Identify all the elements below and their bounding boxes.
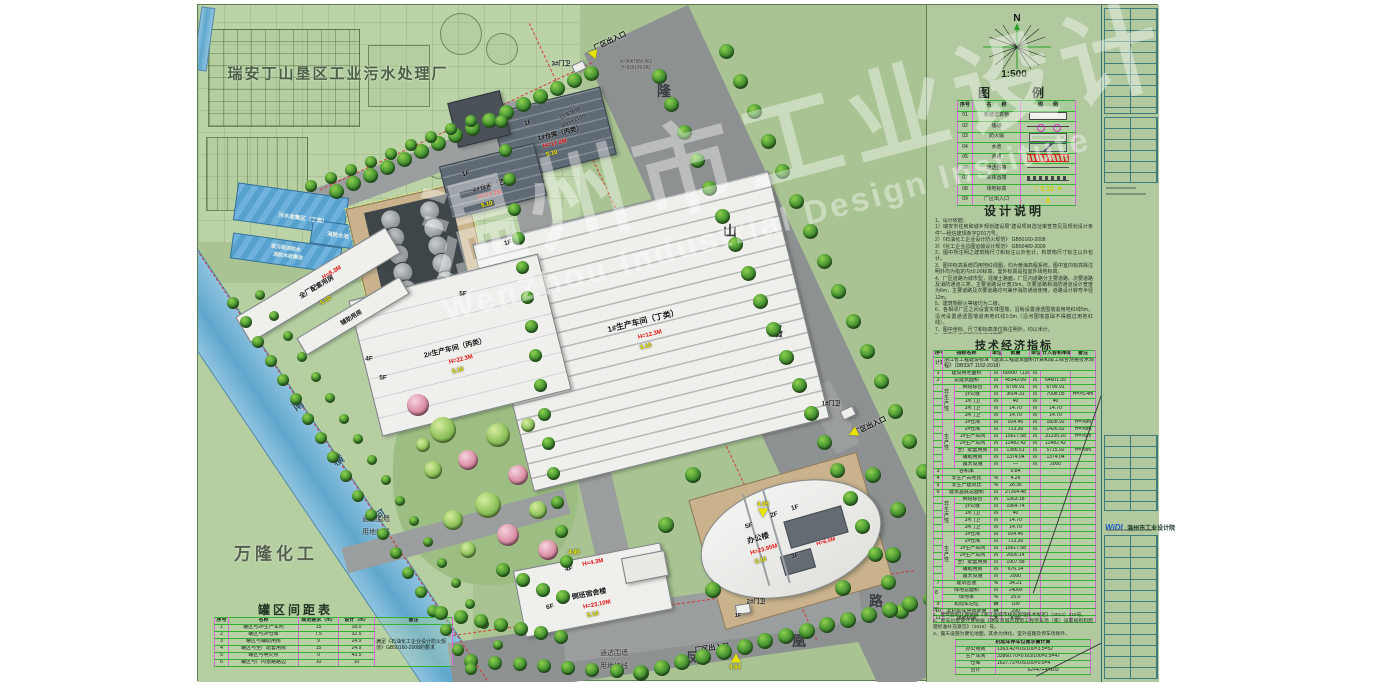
tree-icon (325, 172, 337, 184)
table-cell: ㎡ (991, 370, 1002, 377)
tree-icon (346, 176, 361, 191)
table-cell: H=>8m (1071, 426, 1096, 433)
table-cell (1030, 531, 1041, 538)
tree-icon (290, 393, 302, 405)
workshop2-floor-5f2: 5F (379, 375, 387, 382)
table-cell: 14.70 (1002, 517, 1030, 524)
tree-icon (516, 97, 531, 112)
table-row: 辅助用房㎡676.14 (934, 566, 1096, 573)
tree-icon (534, 379, 547, 392)
tree-icon (437, 558, 447, 568)
table-cell: 31235.16 (1041, 433, 1071, 440)
tree-icon (789, 194, 804, 209)
tree-icon (533, 89, 548, 104)
table-cell: 1374.04 (1041, 454, 1071, 461)
table-cell: ㎡ (1030, 433, 1041, 440)
tree-icon (550, 81, 565, 96)
table-cell: ㎡ (991, 524, 1002, 531)
table-cell: ㎡ (991, 496, 1002, 503)
tree-icon (705, 582, 721, 598)
table-cell: 01 (958, 111, 973, 122)
table-cell: ㎡ (991, 384, 1002, 391)
tree-icon (690, 153, 705, 168)
tree-icon (255, 290, 265, 300)
tree-icon (521, 418, 535, 432)
table-cell: 辅助用房 (955, 454, 991, 461)
note-line: 3、露天设施为硬化地面，其余为绿化，室外道路及停车场除外。 (933, 632, 1093, 638)
table-row: 序号名称规范要求（m）设计（m）备注 (215, 618, 453, 625)
tree-icon (423, 537, 433, 547)
tech-indicators-table: 序号指标名称单位数量单位计入容积率建筑面积备注计算建筑面积依据浙江省工程建设标准… (933, 350, 1096, 623)
tank-spacing-title: 罐区间距表 (258, 601, 333, 618)
tree-icon (302, 413, 314, 425)
table-cell: 32.5 (339, 632, 375, 639)
tree-icon (512, 232, 525, 245)
table-cell (1071, 566, 1096, 573)
table-cell: ㎡ (1030, 454, 1041, 461)
table-cell (1071, 496, 1096, 503)
table-cell: 总建筑面积 (943, 377, 991, 384)
table-cell: 罐区与全厂配套用房 (229, 646, 299, 653)
tree-icon (547, 467, 560, 480)
tree-icon (460, 542, 476, 558)
table-cell: 仓库 (956, 661, 996, 668)
tree-icon (674, 654, 690, 670)
tree-icon (495, 115, 508, 128)
table-cell (1041, 594, 1071, 601)
tree-icon (424, 461, 442, 479)
table-cell: ㎡ (991, 391, 1002, 398)
table-cell: % (991, 475, 1002, 482)
table-cell: ㎡ (1030, 370, 1041, 377)
tree-icon (779, 350, 794, 365)
table-cell (1071, 454, 1096, 461)
table-cell: 3#门卫 (955, 412, 991, 419)
tree-icon (508, 203, 521, 216)
table-cell: 07 (958, 174, 973, 185)
gate2-label: 2#门卫 (747, 597, 766, 606)
table-cell (934, 573, 943, 580)
legend-row: 01新建建筑物 (958, 111, 1076, 122)
table-cell: 2#生产车间 (955, 440, 991, 447)
table-cell (934, 440, 943, 447)
table-cell: 序号 (215, 618, 229, 625)
tree-icon (664, 97, 679, 112)
table-cell: 3604.31 (1002, 391, 1030, 398)
table-cell: 6 (215, 660, 229, 667)
tree-icon (567, 73, 582, 88)
tech-notes-text: 注：1、建筑面积计算依据《浙江省城市规划管理技术规定》（2012）316号。2、… (933, 607, 1093, 637)
table-cell: 建筑基底总面积 (943, 489, 991, 496)
table-cell: ㎡ (991, 426, 1002, 433)
coord-y-label: Y=520139.562 (621, 65, 650, 70)
table-row: 1#生产车间㎡15617.58㎡31235.16H=>8m (934, 433, 1096, 440)
table-cell: 1386.51 (1002, 447, 1030, 454)
neighbor-label: 万隆化工 (234, 540, 318, 565)
table-row: 全厂配套用房㎡1907.58 (934, 559, 1096, 566)
table-cell: 指标名称 (943, 351, 991, 358)
table-cell: 实体围墙 (973, 174, 1021, 185)
tree-icon (882, 602, 898, 618)
table-cell: 14.70 (1002, 524, 1030, 531)
tree-icon (475, 492, 501, 518)
table-row: 全厂配套用房㎡1386.51㎡5715.92H=>8m (934, 447, 1096, 454)
table-cell: 24.9 (339, 646, 375, 653)
table-cell: 60000（120亩） (1002, 370, 1030, 377)
table-cell: 27264.48 (1002, 489, 1030, 496)
table-cell (934, 538, 943, 545)
table-cell: 713.26 (1002, 426, 1030, 433)
table-row: 1#门卫㎡40㎡40 (934, 398, 1096, 405)
table-cell: 道路 (973, 153, 1021, 164)
tree-icon (843, 491, 858, 506)
table-cell: 06 (958, 164, 973, 175)
legend-row: 04水池 (958, 143, 1076, 154)
table-cell (1021, 132, 1076, 143)
tree-icon (766, 322, 781, 337)
north-letter: N (1013, 13, 1020, 24)
table-cell (1041, 503, 1071, 510)
table-cell: 1627.72×0.6/100×0.5=4 (996, 661, 1091, 668)
table-cell (1041, 573, 1071, 580)
logo-mark: WiDI (1105, 523, 1123, 532)
tree-icon (269, 311, 279, 321)
table-cell: ㎡ (991, 517, 1002, 524)
tree-icon (329, 184, 344, 199)
table-cell: ㎡ (1030, 440, 1041, 447)
table-cell: 非生产占地比 (943, 475, 991, 482)
tree-icon (363, 168, 378, 183)
table-cell: ㎡ (1030, 405, 1041, 412)
table-cell: 罐区与明火点 (229, 653, 299, 660)
table-cell: 设计（m） (339, 618, 375, 625)
table-row: 2#仓库㎡713.26㎡1426.52H=>8m (934, 426, 1096, 433)
tree-icon (227, 297, 239, 309)
table-cell: H=>8m (1071, 433, 1096, 440)
table-cell: 水池 (973, 143, 1021, 154)
table-cell: 5 (215, 653, 229, 660)
table-cell (934, 531, 943, 538)
table-cell: 名称 (229, 618, 299, 625)
tree-icon (493, 640, 503, 650)
titleblock-text-smudge (1106, 187, 1136, 189)
tree-icon (654, 660, 670, 676)
table-cell: 罐区与2#生产车间 (229, 625, 299, 632)
table-cell: 1#仓库 (955, 419, 991, 426)
table-cell: ㎡ (991, 412, 1002, 419)
table-cell: % (991, 580, 1002, 587)
note-line: 3、图中标高系统同用地红线图，均为黄海高程系统，图中室内标高除注明外均为指定内±… (935, 263, 1093, 276)
tree-icon (497, 524, 519, 546)
table-cell (1041, 482, 1071, 489)
tree-icon (397, 152, 412, 167)
table-cell: 机动车停车位需求量计算 (956, 640, 1091, 647)
table-cell: 露天设施 (955, 573, 991, 580)
titleblock-text-smudge (1106, 529, 1152, 531)
fence-open-label-b: 通透围墙 (600, 648, 628, 658)
table-cell: 非生产性 (943, 496, 955, 531)
table-cell (1071, 510, 1096, 517)
table-cell: 25.0 (1002, 594, 1030, 601)
table-cell: 28.35 (1002, 482, 1030, 489)
tree-icon (685, 467, 701, 483)
table-cell: 15617.58 (1002, 545, 1030, 552)
tree-icon (799, 623, 815, 639)
table-cell: ㎡ (991, 454, 1002, 461)
tree-icon (677, 125, 692, 140)
table-row: 2#门卫㎡14.70 (934, 517, 1096, 524)
tree-icon (658, 517, 674, 533)
table-cell (1030, 538, 1041, 545)
table-cell (934, 391, 943, 398)
table-row: 1罐区与2#生产车间1518.0满足《石油化工企业设计防火规范》GB50160-… (215, 625, 453, 632)
table-cell (1071, 545, 1096, 552)
table-cell: 1#门卫 (955, 510, 991, 517)
table-cell: 64601.55 (1041, 377, 1071, 384)
table-cell: 43.5 (339, 653, 375, 660)
table-cell: 2#仓库 (955, 426, 991, 433)
tree-icon (874, 374, 889, 389)
note-line: 4、厂区道路为城市型，混凝土路面，厂区内道路分主要道路、次要道路及消防通道三类，… (935, 276, 1093, 302)
table-cell (934, 545, 943, 552)
table-cell: ㎡ (991, 566, 1002, 573)
table-cell (1030, 510, 1041, 517)
table-cell: 1#生产车间 (955, 433, 991, 440)
tank-legend-icon (1027, 123, 1069, 131)
note-line: 1）瑞安市住房和城乡规划建设局“建设项目选址审查意见及规划设计条件”—经信建规条… (935, 224, 1093, 237)
table-cell: 03 (958, 132, 973, 143)
table-cell (1030, 517, 1041, 524)
road-legend-icon (1027, 154, 1069, 162)
table-cell (1071, 531, 1096, 538)
table-cell: 防火堤 (973, 132, 1021, 143)
table-cell: 08 (958, 185, 973, 196)
table-cell: 40 (1002, 510, 1030, 517)
table-cell (1030, 482, 1041, 489)
table-cell: — (1002, 461, 1030, 468)
table-cell (1071, 370, 1096, 377)
design-notes-heading: 设计说明 (927, 202, 1101, 219)
table-cell: 2 (934, 377, 943, 384)
table-cell: 通透围墙 (973, 164, 1021, 175)
title-block-strip: WiDI 温州市工业设计院 (1101, 5, 1159, 682)
table-cell (1041, 468, 1071, 475)
table-cell (1021, 164, 1076, 175)
table-cell: ㎡ (1030, 384, 1041, 391)
table-row: 8绿地总面积㎡14000 (934, 587, 1096, 594)
table-cell: 罐区与2#仓库 (229, 632, 299, 639)
table-cell (1041, 566, 1071, 573)
table-cell: 单位 (1030, 351, 1041, 358)
table-cell: 40 (1002, 398, 1030, 405)
tree-icon (902, 434, 917, 449)
table-row: 办公楼㎡1964.74 (934, 503, 1096, 510)
tree-icon (835, 580, 851, 596)
table-cell (1030, 489, 1041, 496)
table-cell: 1363.18 (1002, 496, 1030, 503)
legend-row: 05道路 (958, 153, 1076, 164)
table-cell (1030, 594, 1041, 601)
tree-icon (365, 156, 377, 168)
table-cell: 7.5 (299, 632, 339, 639)
legend-row: 03防火堤 (958, 132, 1076, 143)
tree-icon (407, 394, 429, 416)
titleblock-approval-table (1104, 117, 1158, 183)
table-row: 露天设施㎡—㎡2000 (934, 461, 1096, 468)
table-cell: 计入容积率建筑面积 (1041, 351, 1071, 358)
table-cell (934, 447, 943, 454)
coord-x-label: X=3067560.562 (620, 59, 652, 64)
table-cell (934, 419, 943, 426)
table-cell (1071, 475, 1096, 482)
table-cell: ㎡ (991, 503, 1002, 510)
tree-icon (747, 104, 762, 119)
tree-icon (513, 657, 527, 671)
table-cell: 9 (299, 653, 339, 660)
legend-row: 02储罐 (958, 122, 1076, 133)
table-row: 6建筑基底总面积㎡27264.48 (934, 489, 1096, 496)
table-cell (934, 405, 943, 412)
table-cell: 14.70 (1041, 412, 1071, 419)
table-cell: 露天设施 (955, 461, 991, 468)
legend-row: 06通透围墙 (958, 164, 1076, 175)
tree-icon (881, 575, 896, 590)
tree-icon (634, 666, 648, 680)
tree-icon (719, 44, 734, 59)
table-cell (1071, 461, 1096, 468)
table-cell: 绿地率 (943, 594, 991, 601)
table-cell (934, 503, 943, 510)
table-cell: 容积率 (943, 468, 991, 475)
table-cell: ㎡ (991, 587, 1002, 594)
table-cell (1041, 370, 1071, 377)
tree-icon (402, 567, 414, 579)
tank-spacing-table: 序号名称规范要求（m）设计（m）备注1罐区与2#生产车间1518.0满足《石油化… (214, 617, 453, 667)
table-row: 仓库1627.72×0.6/100×0.5=4 (956, 661, 1091, 668)
table-cell (1071, 517, 1096, 524)
table-cell: 6799.91 (1002, 384, 1030, 391)
rect-legend-icon (1029, 112, 1067, 120)
tree-icon (916, 464, 926, 479)
tree-icon (846, 314, 861, 329)
tree-icon (733, 74, 748, 89)
table-row: 露天设施㎡2000 (934, 573, 1096, 580)
table-row: 非生产性倒班综合㎡6799.91㎡6799.91 (934, 384, 1096, 391)
table-cell: 1374.04 (1002, 454, 1030, 461)
legend-heading: 图 例 (927, 84, 1101, 101)
tree-icon (494, 618, 508, 632)
elevation-legend-icon: ▽ 5.10 ▼ (1033, 186, 1063, 194)
table-cell: 2#生产车间 (955, 552, 991, 559)
tree-icon (474, 614, 488, 628)
tree-icon (458, 450, 478, 470)
table-cell: 1#仓库 (955, 531, 991, 538)
table-cell (991, 468, 1002, 475)
tree-icon (538, 540, 558, 560)
table-row: 办公用房1363.42×0.6/100×3.5=52 (956, 647, 1091, 654)
table-cell: ㎡ (1030, 461, 1041, 468)
north-arrow-icon: N (977, 11, 1057, 71)
tree-icon (817, 254, 832, 269)
table-cell (1030, 475, 1041, 482)
table-cell: ㎡ (991, 377, 1002, 384)
table-cell: 建筑密度 (943, 580, 991, 587)
table-cell: 2#门卫 (955, 517, 991, 524)
tree-icon (380, 160, 395, 175)
titleblock-text-smudge (1106, 193, 1146, 195)
table-cell: H=>5.4m (1071, 391, 1096, 398)
table-cell: 罐区与辅助用房 (229, 639, 299, 646)
table-cell (934, 412, 943, 419)
table-cell (1071, 552, 1096, 559)
table-cell: 1 (215, 625, 229, 632)
table-cell: 10 (339, 660, 375, 667)
table-cell (1041, 587, 1071, 594)
table-cell (1041, 545, 1071, 552)
tree-icon (741, 266, 756, 281)
table-cell: 14000 (1002, 587, 1030, 594)
tree-icon (538, 408, 551, 421)
table-cell: 713.26 (1002, 538, 1030, 545)
tree-icon (315, 432, 327, 444)
table-cell: ㎡ (1030, 447, 1041, 454)
tree-icon (367, 455, 377, 465)
tree-icon (534, 626, 548, 640)
tree-icon (529, 501, 547, 519)
table-row: 生产性1#仓库㎡914.46 (934, 531, 1096, 538)
table-cell: 办公楼 (955, 503, 991, 510)
table-cell: 14.70 (1002, 412, 1030, 419)
table-cell (934, 510, 943, 517)
table-cell: ㎡ (991, 538, 1002, 545)
table-cell (934, 384, 943, 391)
tree-icon (778, 628, 794, 644)
legend-row: 08场地标高▽ 5.10 ▼ (958, 185, 1076, 196)
table-cell (1071, 384, 1096, 391)
table-cell: 单位 (991, 351, 1002, 358)
table-cell: 24.9 (339, 639, 375, 646)
tree-icon (525, 320, 538, 333)
tree-icon (430, 417, 456, 443)
tree-icon (454, 610, 468, 624)
legend-panel: N 1:500 图 例 序号名 称图 例01新建建筑物02储罐03防火堤04水池… (926, 5, 1101, 682)
table-cell (1021, 174, 1076, 185)
table-cell: 40 (1041, 398, 1071, 405)
table-cell (934, 461, 943, 468)
table-cell: 合计 (956, 668, 996, 675)
table-cell (1041, 538, 1071, 545)
table-cell: 2000 (1002, 573, 1030, 580)
table-cell: 生产性 (943, 419, 955, 468)
table-cell: 1426.52 (1041, 426, 1071, 433)
table-row: 非生产性倒班综合㎡1363.18 (934, 496, 1096, 503)
tree-icon (652, 69, 667, 84)
tree-icon (803, 224, 818, 239)
entrance-south-arrow-icon (731, 654, 741, 663)
table-cell (1071, 398, 1096, 405)
table-cell: ㎡ (991, 552, 1002, 559)
table-cell: 914.46 (1002, 531, 1030, 538)
table-row: 2#门卫㎡14.70㎡14.70 (934, 405, 1096, 412)
table-cell: 生产车间 (956, 654, 996, 661)
table-cell (1071, 482, 1096, 489)
table-cell: 34.21 (1002, 580, 1030, 587)
table-cell: 全厂配套用房 (955, 447, 991, 454)
tree-icon (761, 134, 776, 149)
table-cell: 10 (299, 660, 339, 667)
table-cell: 676.14 (1002, 566, 1030, 573)
table-cell: ㎡ (991, 419, 1002, 426)
